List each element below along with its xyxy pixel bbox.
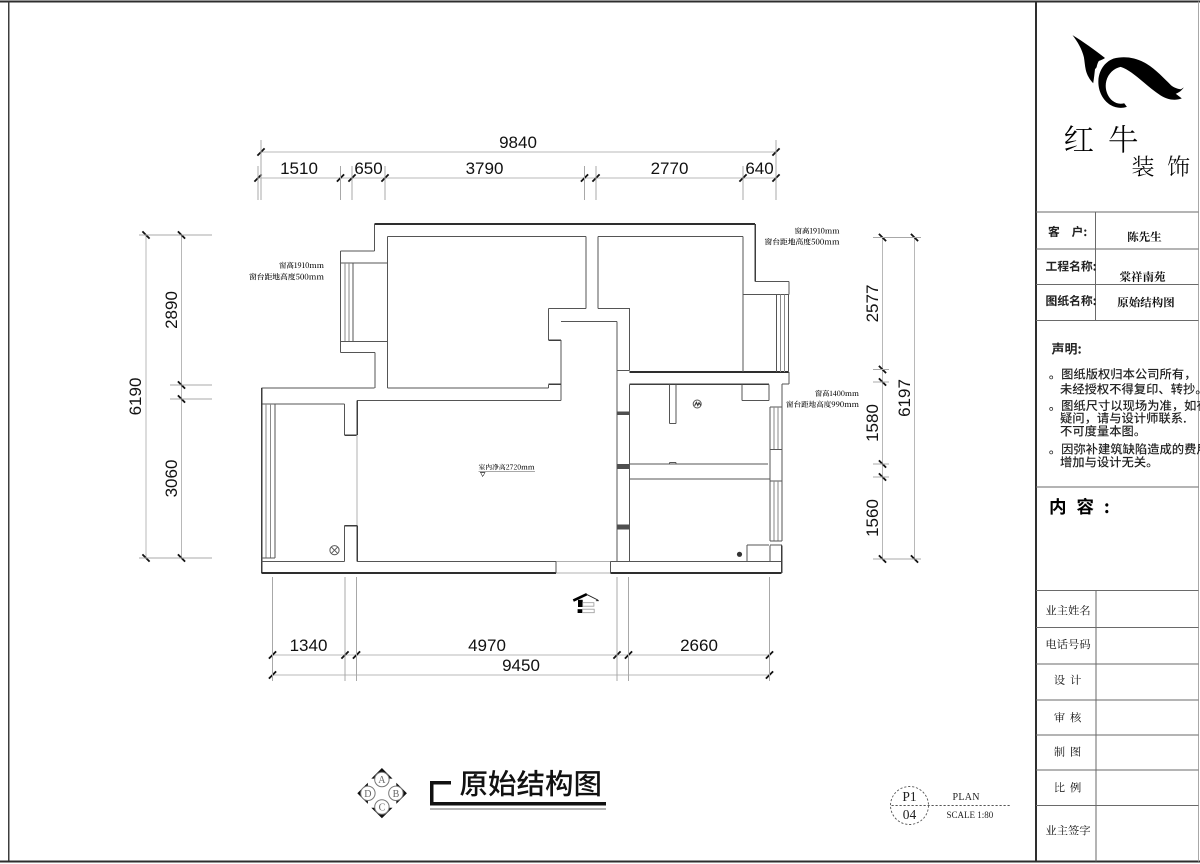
svg-text:2660: 2660	[680, 636, 718, 655]
svg-text:9840: 9840	[499, 133, 537, 152]
svg-text:6197: 6197	[895, 379, 914, 417]
svg-text:3060: 3060	[162, 460, 181, 498]
svg-text:A: A	[378, 775, 386, 786]
svg-text:3790: 3790	[466, 159, 504, 178]
svg-text:C: C	[379, 803, 386, 814]
svg-text:6190: 6190	[126, 378, 145, 416]
svg-text:04: 04	[903, 807, 917, 822]
svg-text:1580: 1580	[863, 404, 882, 442]
svg-text:2577: 2577	[863, 285, 882, 323]
svg-text:2890: 2890	[162, 291, 181, 329]
svg-text:PLAN: PLAN	[953, 792, 980, 803]
svg-text:1560: 1560	[863, 499, 882, 537]
svg-text:SCALE 1:80: SCALE 1:80	[947, 810, 994, 820]
svg-text:D: D	[364, 789, 371, 800]
svg-text:1510: 1510	[280, 159, 318, 178]
svg-text:2770: 2770	[651, 159, 689, 178]
svg-text:4970: 4970	[468, 636, 506, 655]
svg-text:9450: 9450	[502, 656, 540, 675]
svg-text:P1: P1	[902, 789, 916, 804]
svg-text:650: 650	[354, 159, 382, 178]
svg-text:640: 640	[745, 159, 773, 178]
svg-text:1340: 1340	[290, 636, 328, 655]
svg-text:B: B	[393, 789, 400, 800]
